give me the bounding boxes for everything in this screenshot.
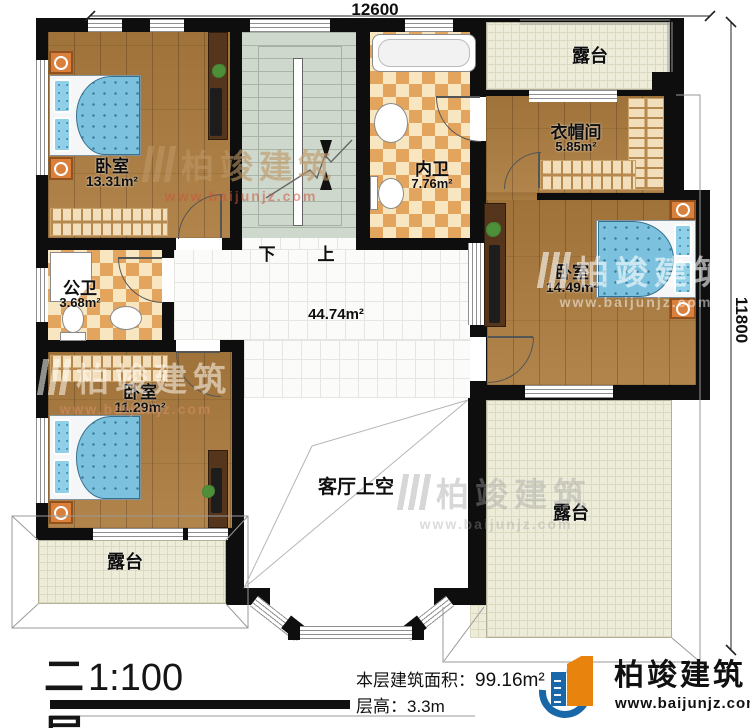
hall-area-label: 44.74m² <box>308 306 364 323</box>
toilet <box>378 178 404 209</box>
room-area-bedroom-right: 14.49m² <box>546 279 598 295</box>
brand-logo-orange-tower-icon <box>567 656 593 706</box>
bed-pillow <box>53 117 71 152</box>
door-opening <box>162 258 174 302</box>
terrace-bottom-right-label: 露台 <box>553 499 589 525</box>
door-leaf <box>220 194 222 238</box>
nightstand <box>670 298 696 319</box>
bed-pillow <box>674 224 692 257</box>
door-leaf <box>176 351 220 353</box>
stair-rail <box>293 58 303 226</box>
bed-pillow <box>53 459 71 495</box>
bay-wall-cap <box>410 624 424 640</box>
floor-height-value: 3.3m <box>407 697 445 716</box>
brand-logo-blue-tower-icon <box>551 672 566 706</box>
window <box>250 19 330 32</box>
terrace-bottom-right-patch <box>470 605 486 638</box>
terrace-top-right-label: 露台 <box>572 42 608 68</box>
floor-height-stat: 层高：3.3m <box>356 692 445 717</box>
bed-blanket <box>76 76 140 155</box>
stairs-down-label: 下 <box>259 240 276 265</box>
door-leaf <box>488 336 533 338</box>
window <box>36 268 48 322</box>
room-area-bedroom-bottom-left: 11.29m² <box>114 399 165 415</box>
hall-floor-lower <box>244 340 470 398</box>
toilet-tank <box>370 176 378 210</box>
window <box>529 90 617 102</box>
window <box>36 418 48 503</box>
window <box>405 19 453 32</box>
bed-pillow <box>674 261 692 294</box>
nightstand <box>49 501 73 524</box>
stairs-up-label: 上 <box>318 240 335 265</box>
bed-pillow <box>53 419 71 455</box>
dimension-right: 11800 <box>731 297 750 343</box>
room-area-inner-bathroom: 7.76m² <box>411 176 452 191</box>
monitor <box>489 245 500 323</box>
stair-arrow-down-icon <box>320 140 332 159</box>
terrace-bottom-left-label: 露台 <box>107 548 143 574</box>
window <box>525 385 613 398</box>
wall-void-right <box>468 385 486 605</box>
nightstand <box>49 157 73 180</box>
nightstand <box>670 200 696 220</box>
window <box>188 528 228 540</box>
room-area-cloakroom: 5.85m² <box>555 139 596 154</box>
bathtub-inner <box>378 39 470 67</box>
page-title: 二层平面图 <box>44 644 86 728</box>
door-opening <box>470 337 486 381</box>
floor-height-label: 层高： <box>356 697 407 716</box>
door-leaf <box>118 257 162 259</box>
room-area-public-bathroom: 3.68m² <box>59 295 100 310</box>
brand-name: 柏竣建筑 <box>614 650 746 694</box>
bed-pillow <box>53 79 71 113</box>
wardrobe <box>50 208 168 236</box>
window <box>36 60 48 175</box>
sink <box>374 103 408 143</box>
nightstand <box>49 51 73 74</box>
stair-arrow-up-icon <box>320 171 332 190</box>
toilet-tank <box>60 332 86 341</box>
floor-area-stat: 本层建筑面积：99.16m² <box>356 666 545 692</box>
floor-area-value: 99.16m² <box>475 670 545 691</box>
dimension-top: 12600 <box>351 0 398 20</box>
door-leaf <box>436 96 480 98</box>
sink <box>110 306 142 330</box>
bay-window-center <box>300 626 412 640</box>
bed-blanket <box>76 416 140 499</box>
window <box>93 528 183 540</box>
bed-blanket <box>598 221 674 297</box>
drawing-scale: 1:100 <box>88 657 183 700</box>
window <box>150 19 184 32</box>
wardrobe <box>540 160 636 190</box>
room-area-bedroom-top-left: 13.31m² <box>86 173 138 189</box>
monitor <box>210 88 222 136</box>
floor-area-label: 本层建筑面积： <box>356 671 475 690</box>
living-room-void-label: 客厅上空 <box>318 472 394 499</box>
brand-logo <box>537 650 609 722</box>
floor-plan-canvas: 12600 11800 <box>0 0 750 728</box>
door-opening <box>176 238 222 250</box>
brand-website: www.baijunjz.com <box>615 695 750 712</box>
window <box>88 19 122 32</box>
